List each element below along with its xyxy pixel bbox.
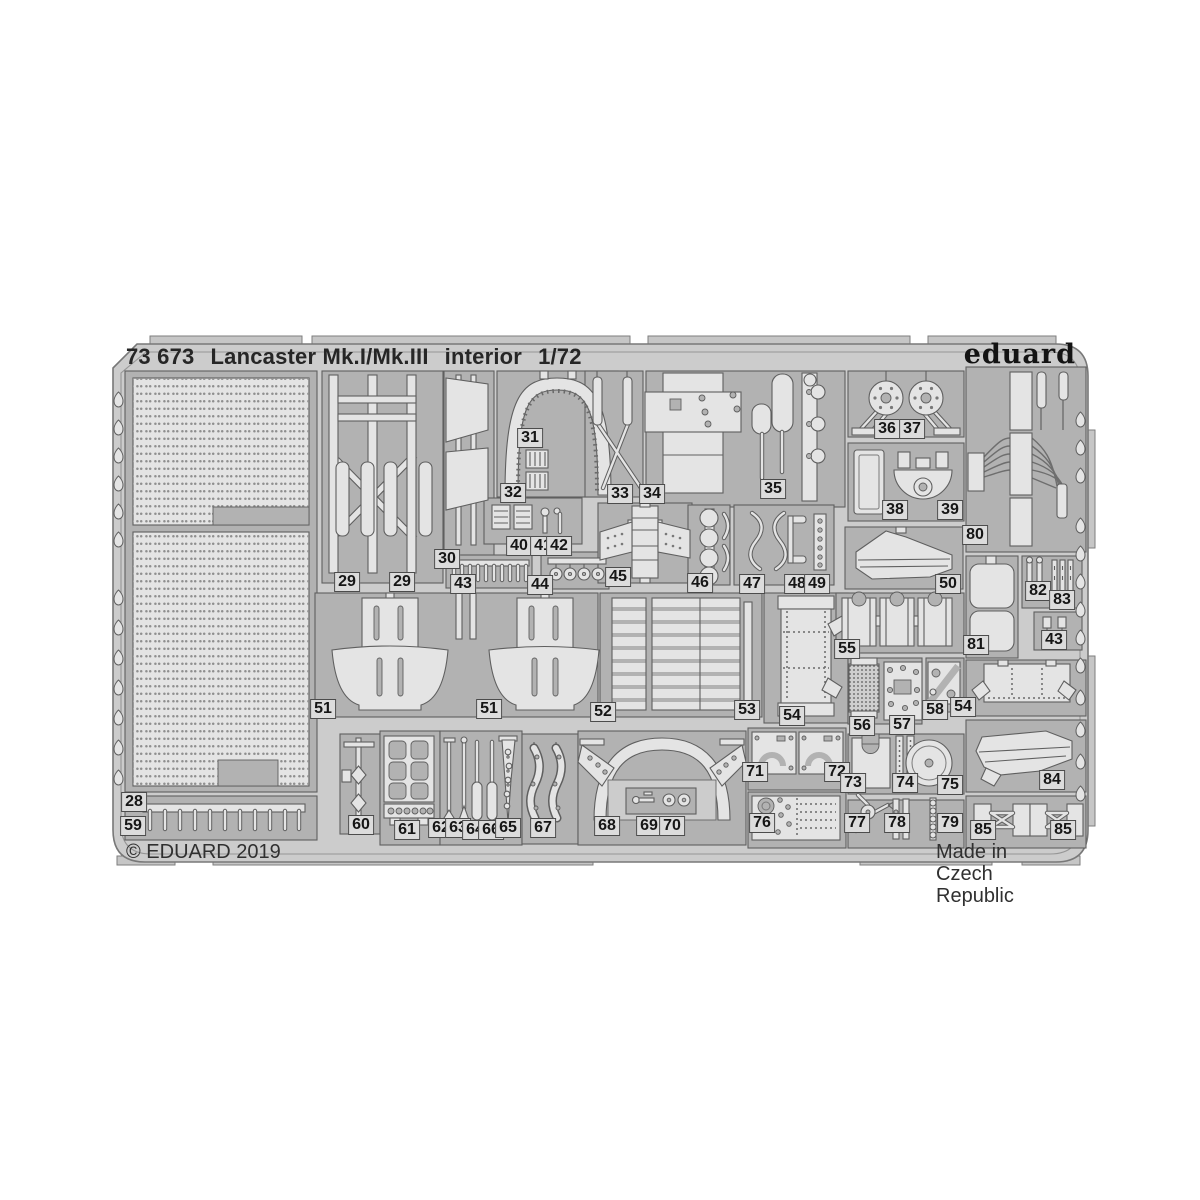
part-number-label: 39 [937, 500, 963, 520]
part-number-label: 42 [546, 536, 572, 556]
part-number-label: 68 [594, 816, 620, 836]
part-number-label: 78 [884, 813, 910, 833]
part-number-label: 35 [760, 479, 786, 499]
part-number-label: 70 [659, 816, 685, 836]
part-number-label: 81 [963, 635, 989, 655]
sheet-title: Lancaster Mk.I/Mk.III [211, 345, 429, 369]
part-number-label: 46 [687, 573, 713, 593]
part-number-label: 82 [1025, 581, 1051, 601]
part-number-label: 55 [834, 639, 860, 659]
part-number-label: 74 [892, 773, 918, 793]
part-number-label: 44 [527, 575, 553, 595]
part-number-label: 56 [849, 716, 875, 736]
part-number-label: 43 [1041, 630, 1067, 650]
part-number-label: 37 [899, 419, 925, 439]
part-number-label: 76 [749, 813, 775, 833]
part-number-label: 85 [1050, 820, 1076, 840]
part-number-label: 84 [1039, 770, 1065, 790]
part-number-label: 32 [500, 483, 526, 503]
part-number-label: 85 [970, 820, 996, 840]
part-number-label: 40 [506, 536, 532, 556]
part-number-label: 57 [889, 715, 915, 735]
part-number-label: 83 [1049, 590, 1075, 610]
part-number-label: 30 [434, 549, 460, 569]
sheet-code: 73 673 [126, 345, 195, 369]
part-number-label: 34 [639, 484, 665, 504]
part-number-label: 60 [348, 815, 374, 835]
part-number-label: 59 [120, 816, 146, 836]
part-number-label: 69 [636, 816, 662, 836]
part-number-label: 50 [935, 574, 961, 594]
part-number-label: 80 [962, 525, 988, 545]
part-number-label: 65 [495, 818, 521, 838]
part-number-label: 29 [334, 572, 360, 592]
part-number-label: 75 [937, 775, 963, 795]
part-number-label: 52 [590, 702, 616, 722]
part-number-label: 51 [310, 699, 336, 719]
part-number-label: 33 [607, 484, 633, 504]
part-labels-layer: 2829293031323334353637383940414243444546… [0, 0, 1200, 1200]
part-number-label: 77 [844, 813, 870, 833]
copyright-text: © EDUARD 2019 [126, 841, 281, 863]
made-in-text: Made in Czech Republic [936, 841, 1068, 907]
sheet-scale: 1/72 [538, 345, 582, 369]
part-number-label: 54 [779, 706, 805, 726]
part-number-label: 38 [882, 500, 908, 520]
part-number-label: 53 [734, 700, 760, 720]
product-photo: 73 673 Lancaster Mk.I/Mk.III interior 1/… [0, 0, 1200, 1200]
part-number-label: 71 [742, 762, 768, 782]
part-number-label: 49 [804, 574, 830, 594]
part-number-label: 47 [739, 574, 765, 594]
part-number-label: 43 [450, 574, 476, 594]
part-number-label: 58 [922, 700, 948, 720]
part-number-label: 79 [937, 813, 963, 833]
sheet-subtitle: interior [445, 345, 522, 369]
sheet-header: 73 673 Lancaster Mk.I/Mk.III interior 1/… [126, 345, 582, 369]
part-number-label: 45 [605, 567, 631, 587]
part-number-label: 67 [530, 818, 556, 838]
brand-logo: eduard [964, 341, 1076, 369]
part-number-label: 61 [394, 820, 420, 840]
part-number-label: 28 [121, 792, 147, 812]
part-number-label: 51 [476, 699, 502, 719]
part-number-label: 54 [950, 697, 976, 717]
part-number-label: 31 [517, 428, 543, 448]
part-number-label: 36 [874, 419, 900, 439]
part-number-label: 73 [840, 773, 866, 793]
part-number-label: 29 [389, 572, 415, 592]
